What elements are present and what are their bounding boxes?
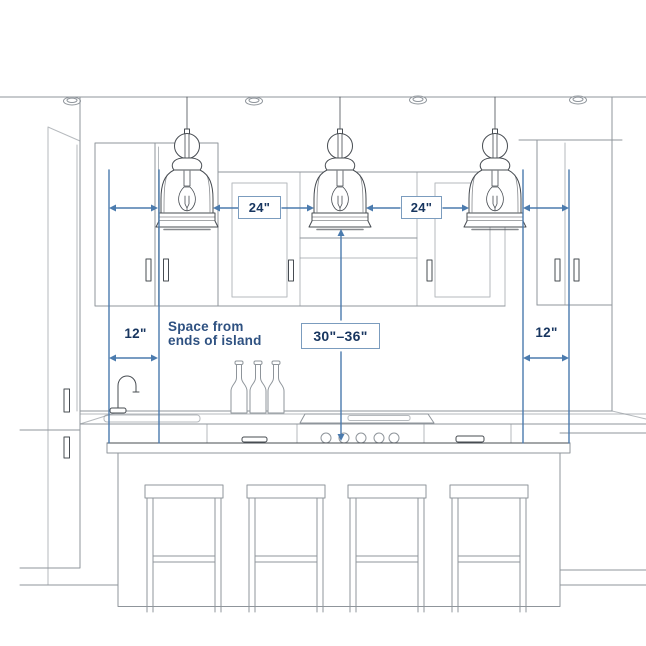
island-base bbox=[118, 453, 560, 607]
bar-stool-1 bbox=[145, 485, 223, 612]
end-offset-arrow-right-upper bbox=[523, 205, 569, 212]
end-offset-label-right: 12" bbox=[530, 325, 563, 340]
left-wall-corner bbox=[48, 97, 80, 585]
pendant-light-icon-1 bbox=[156, 97, 218, 230]
recessed-light-icon-4 bbox=[570, 96, 587, 104]
kitchen-faucet-icon bbox=[110, 376, 139, 413]
height-range-box: 30"–36" bbox=[301, 323, 380, 349]
bottle-icon-1 bbox=[231, 361, 247, 413]
pendant-light-icon-2 bbox=[309, 97, 371, 230]
island-ends-note-line2: ends of island bbox=[168, 334, 262, 348]
recessed-light-icon-2 bbox=[246, 97, 263, 105]
pendant-gap-box-right: 24" bbox=[401, 196, 442, 219]
bar-stool-4 bbox=[450, 485, 528, 612]
recessed-light-icon-1 bbox=[64, 97, 81, 105]
upper-cabinet-right bbox=[519, 140, 622, 305]
recessed-light-icon-3 bbox=[410, 96, 427, 104]
bar-stool-2 bbox=[247, 485, 325, 612]
island-counter-slab bbox=[107, 443, 570, 453]
end-offset-label-left: 12" bbox=[119, 326, 152, 341]
bottle-icon-2 bbox=[250, 361, 266, 413]
pendant-light-icon-3 bbox=[464, 97, 526, 230]
end-offset-arrow-left-upper bbox=[109, 205, 158, 212]
floor-lines bbox=[20, 424, 646, 585]
kitchen-sink bbox=[104, 415, 200, 422]
left-base-cabinet-handles bbox=[64, 389, 70, 458]
kitchen-pendant-spacing-diagram: 24" 24" 30"–36" 12" 12" Space from ends … bbox=[0, 0, 646, 646]
island-ends-note-line1: Space from bbox=[168, 320, 262, 334]
cooktop bbox=[300, 414, 434, 423]
cooktop-knobs bbox=[321, 433, 399, 443]
bottle-icon-3 bbox=[268, 361, 284, 413]
island-ends-note: Space from ends of island bbox=[168, 320, 262, 348]
pendant-gap-box-left: 24" bbox=[238, 196, 281, 219]
range-hood-niche bbox=[300, 238, 417, 258]
end-offset-arrow-right-lower bbox=[523, 355, 569, 362]
bar-stool-3 bbox=[348, 485, 426, 612]
end-offset-arrow-left-lower bbox=[109, 355, 158, 362]
